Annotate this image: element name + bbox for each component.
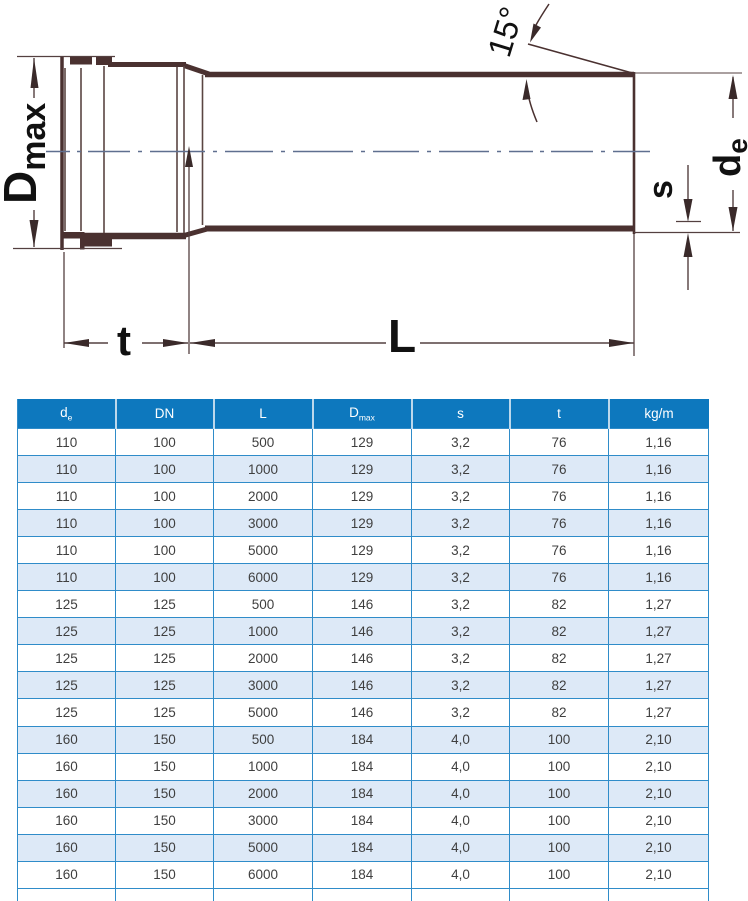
svg-text:L: L <box>388 310 416 362</box>
svg-text:s: s <box>642 180 680 199</box>
svg-text:15°: 15° <box>480 3 530 62</box>
svg-text:Dmax: Dmax <box>0 103 53 204</box>
svg-text:de: de <box>707 138 748 177</box>
svg-text:t: t <box>117 317 131 364</box>
